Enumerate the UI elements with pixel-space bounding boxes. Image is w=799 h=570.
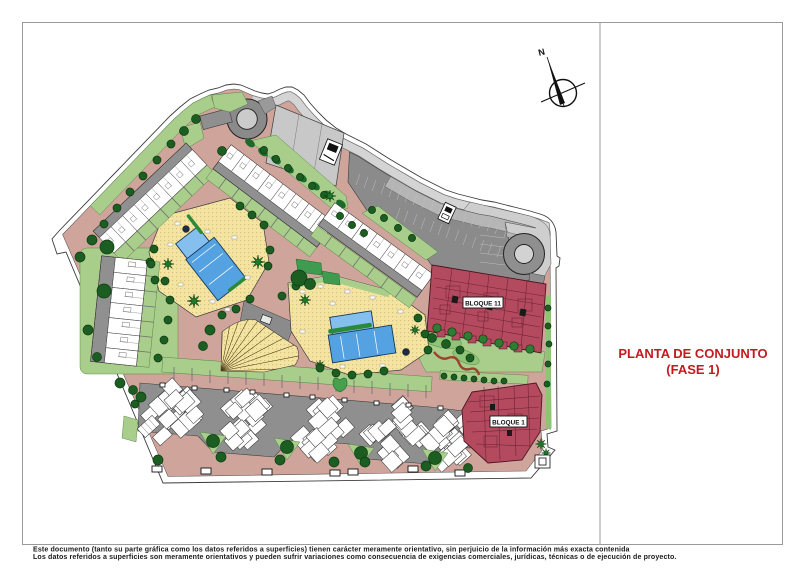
svg-text:PLANTA DE CONJUNTO: PLANTA DE CONJUNTO [618, 346, 767, 361]
svg-text:Los datos referidos a superfic: Los datos referidos a superficies son me… [33, 554, 677, 561]
svg-text:BLOQUE 1: BLOQUE 1 [492, 420, 525, 427]
svg-text:(FASE 1): (FASE 1) [666, 362, 719, 377]
svg-text:Este documento (tanto su parte: Este documento (tanto su parte gráfica c… [33, 547, 630, 554]
svg-text:BLOQUE 11: BLOQUE 11 [465, 301, 501, 308]
